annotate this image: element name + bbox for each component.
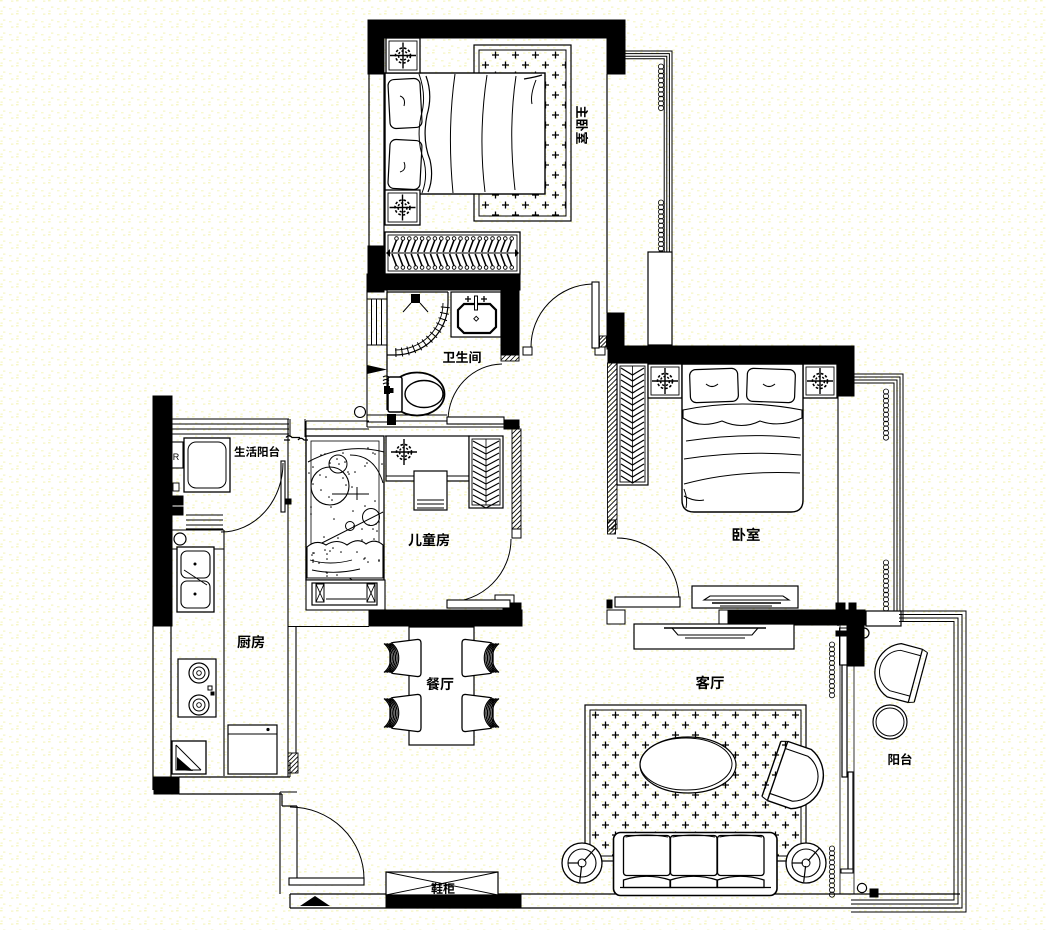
svg-text:R: R xyxy=(173,452,180,462)
